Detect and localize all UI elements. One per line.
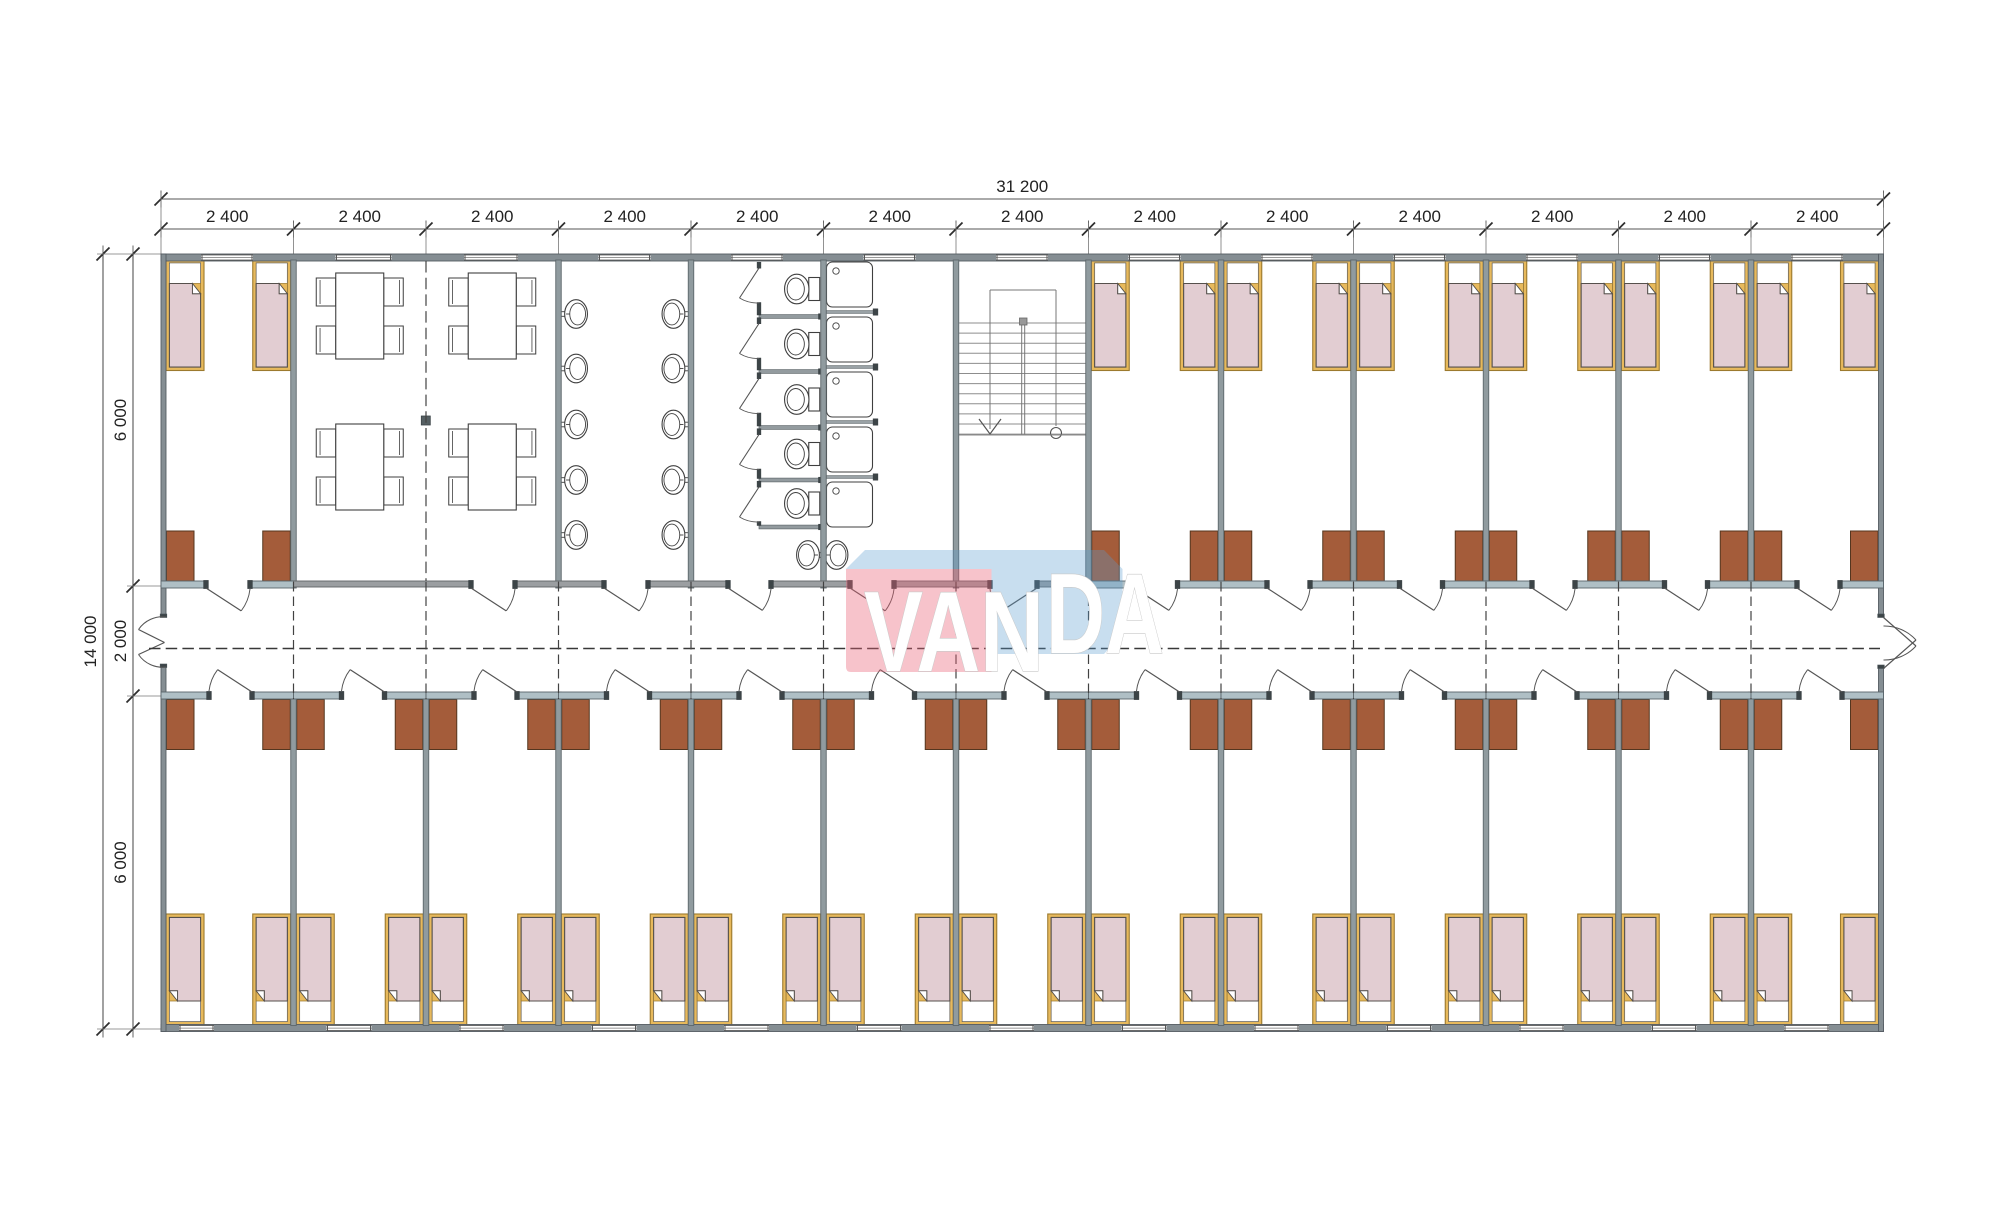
svg-text:31 200: 31 200	[996, 177, 1048, 196]
svg-text:2 400: 2 400	[1133, 207, 1176, 226]
svg-text:2 400: 2 400	[338, 207, 381, 226]
svg-text:2 400: 2 400	[1663, 207, 1706, 226]
svg-text:2 400: 2 400	[206, 207, 249, 226]
svg-text:2 400: 2 400	[1531, 207, 1574, 226]
svg-text:2 400: 2 400	[1398, 207, 1441, 226]
svg-text:2 000: 2 000	[111, 620, 130, 663]
svg-text:2 400: 2 400	[736, 207, 779, 226]
svg-text:VAN: VAN	[864, 569, 1044, 696]
svg-text:2 400: 2 400	[603, 207, 646, 226]
svg-text:2 400: 2 400	[1266, 207, 1309, 226]
svg-text:2 400: 2 400	[1796, 207, 1839, 226]
svg-text:2 400: 2 400	[1001, 207, 1044, 226]
svg-text:2 400: 2 400	[471, 207, 514, 226]
svg-text:DA: DA	[1046, 551, 1164, 678]
svg-text:14 000: 14 000	[81, 616, 100, 668]
svg-text:2 400: 2 400	[868, 207, 911, 226]
svg-text:6 000: 6 000	[111, 399, 130, 442]
svg-text:6 000: 6 000	[111, 841, 130, 884]
